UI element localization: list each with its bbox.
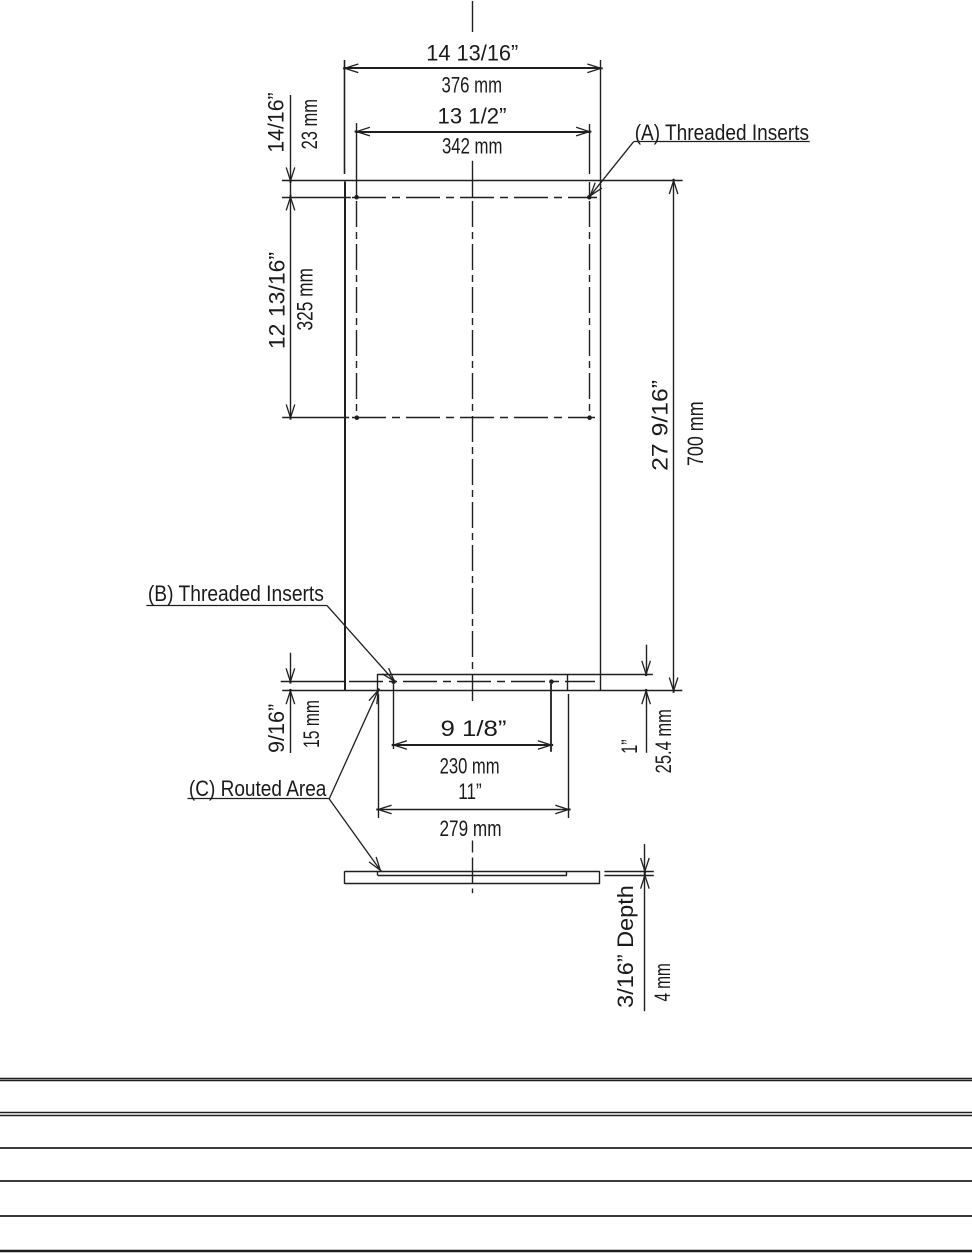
svg-text:700 mm: 700 mm [683, 401, 708, 466]
svg-text:14 13/16”: 14 13/16” [426, 41, 518, 66]
svg-text:1”: 1” [617, 739, 642, 753]
svg-text:4 mm: 4 mm [650, 963, 675, 1001]
svg-text:12 13/16”: 12 13/16” [265, 252, 290, 349]
svg-text:15 mm: 15 mm [299, 700, 324, 748]
svg-text:9/16”: 9/16” [264, 704, 289, 753]
svg-text:(C) Routed Area: (C) Routed Area [189, 776, 327, 801]
svg-text:11”: 11” [458, 779, 482, 804]
svg-text:325 mm: 325 mm [293, 268, 318, 331]
svg-text:230 mm: 230 mm [440, 753, 500, 778]
svg-text:342 mm: 342 mm [442, 134, 503, 159]
svg-text:23 mm: 23 mm [297, 99, 322, 149]
svg-text:279 mm: 279 mm [440, 816, 502, 841]
svg-text:13 1/2”: 13 1/2” [438, 103, 507, 128]
svg-text:(B) Threaded Inserts: (B) Threaded Inserts [148, 581, 324, 606]
svg-text:3/16” Depth: 3/16” Depth [613, 885, 638, 1008]
svg-text:376 mm: 376 mm [442, 72, 503, 97]
svg-text:25.4 mm: 25.4 mm [651, 709, 676, 773]
svg-text:9 1/8”: 9 1/8” [441, 716, 507, 741]
svg-text:14/16”: 14/16” [264, 92, 289, 152]
svg-text:27 9/16”: 27 9/16” [647, 380, 672, 471]
